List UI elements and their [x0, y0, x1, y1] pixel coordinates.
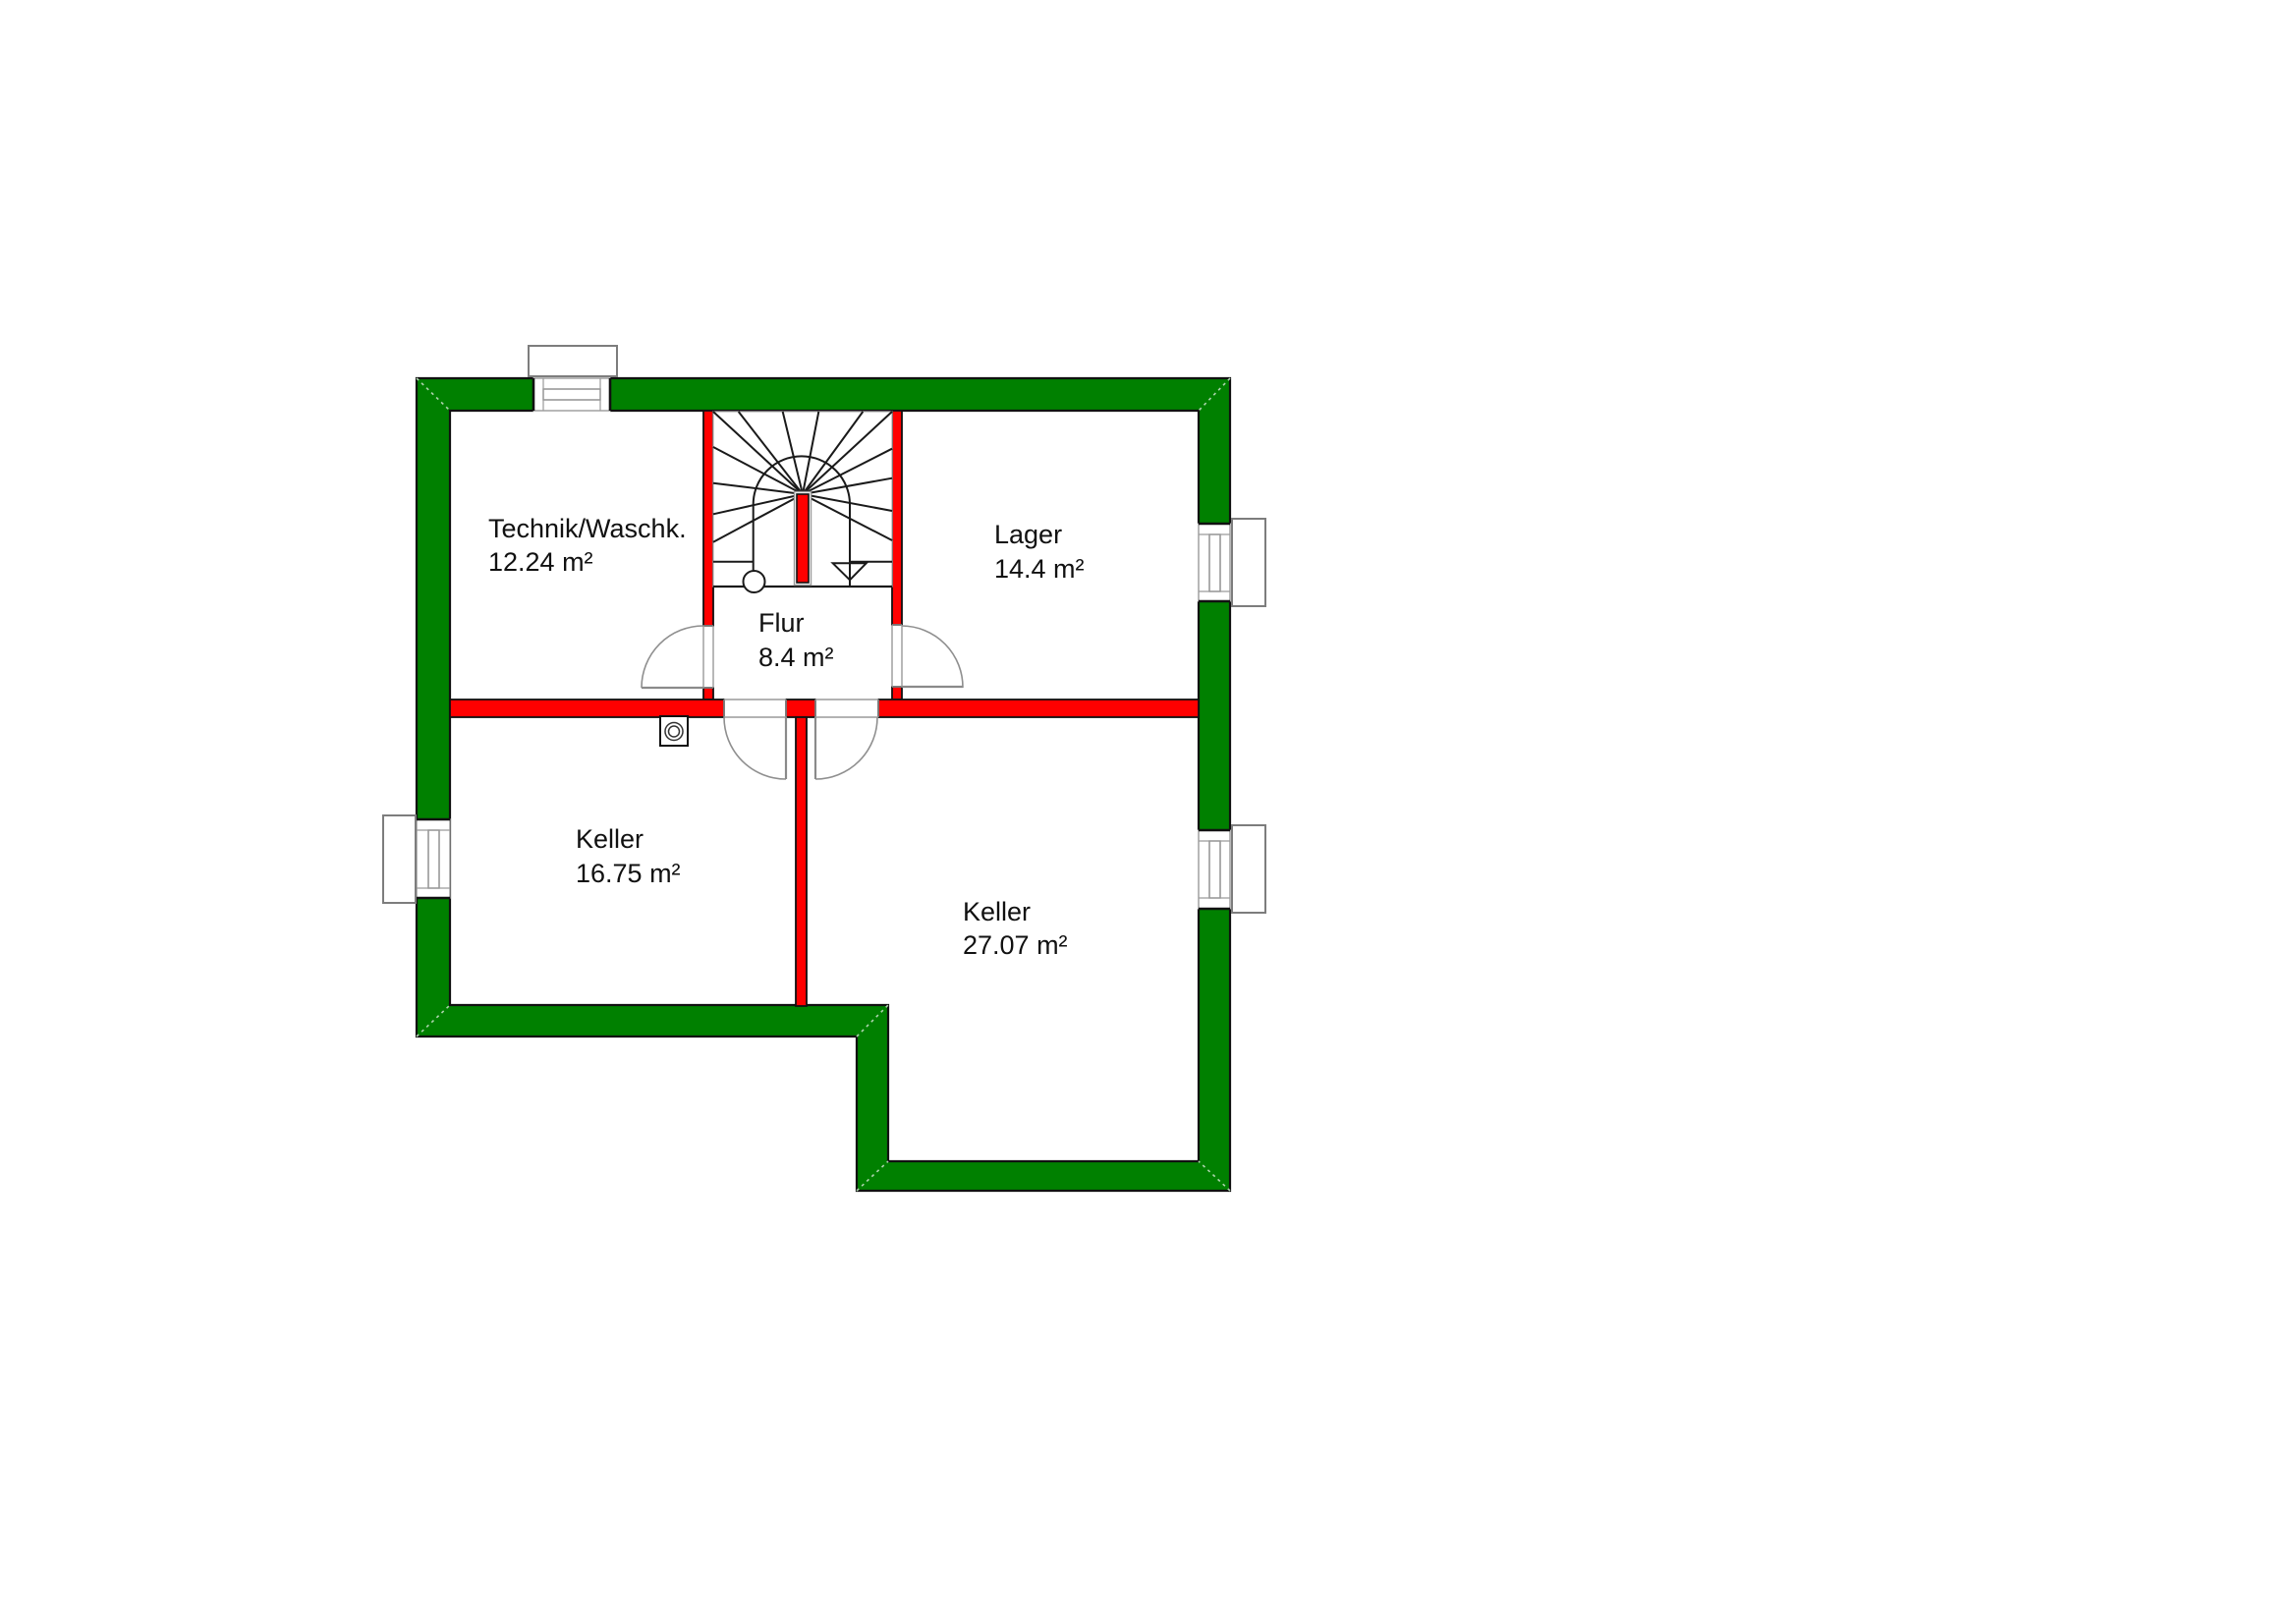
- floor-drain-icon: [660, 716, 688, 746]
- cross-wall-middle-segment: [786, 700, 815, 717]
- window-west: [383, 815, 451, 903]
- room-area-technik: 12.24 m²: [488, 547, 593, 577]
- floor-plan-drawing: Technik/Waschk. 12.24 m² Lager 14.4 m² F…: [0, 0, 2296, 1624]
- room-label-keller-small: Keller: [576, 824, 644, 854]
- window-east-upper-sill-box: [1232, 519, 1265, 606]
- stairwell-wall-left: [703, 411, 713, 626]
- window-west-sill-box: [383, 815, 416, 903]
- stair-spine-wall: [797, 494, 809, 583]
- room-area-keller-small: 16.75 m²: [576, 859, 681, 888]
- room-label-flur: Flur: [758, 608, 805, 638]
- room-area-lager: 14.4 m²: [994, 554, 1085, 584]
- room-area-flur: 8.4 m²: [758, 643, 834, 672]
- room-label-keller-large: Keller: [963, 897, 1031, 926]
- stairwell-wall-right: [892, 411, 902, 625]
- window-east-upper: [1198, 519, 1266, 606]
- door-arc-technik: [642, 626, 703, 688]
- room-label-lager: Lager: [994, 520, 1062, 549]
- window-north-sill-box: [529, 346, 617, 376]
- cross-wall-left-segment: [450, 700, 724, 717]
- room-area-keller-large: 27.07 m²: [963, 930, 1068, 960]
- floor-plan-page: Technik/Waschk. 12.24 m² Lager 14.4 m² F…: [0, 0, 2296, 1624]
- door-arc-keller-small: [724, 717, 786, 779]
- room-label-technik: Technik/Waschk.: [488, 514, 687, 543]
- door-arc-lager: [902, 626, 963, 688]
- window-east-lower: [1198, 825, 1266, 913]
- window-east-lower-sill-box: [1232, 825, 1265, 913]
- window-north: [529, 346, 617, 413]
- keller-divider-wall: [796, 717, 807, 1006]
- stair-post-circle: [744, 571, 765, 592]
- staircase: [713, 412, 892, 592]
- cross-wall-right-segment: [878, 700, 1199, 717]
- door-arc-keller-large: [815, 717, 877, 779]
- stairwell-wall-right-stub: [892, 687, 902, 700]
- stairwell-wall-left-stub: [703, 688, 713, 700]
